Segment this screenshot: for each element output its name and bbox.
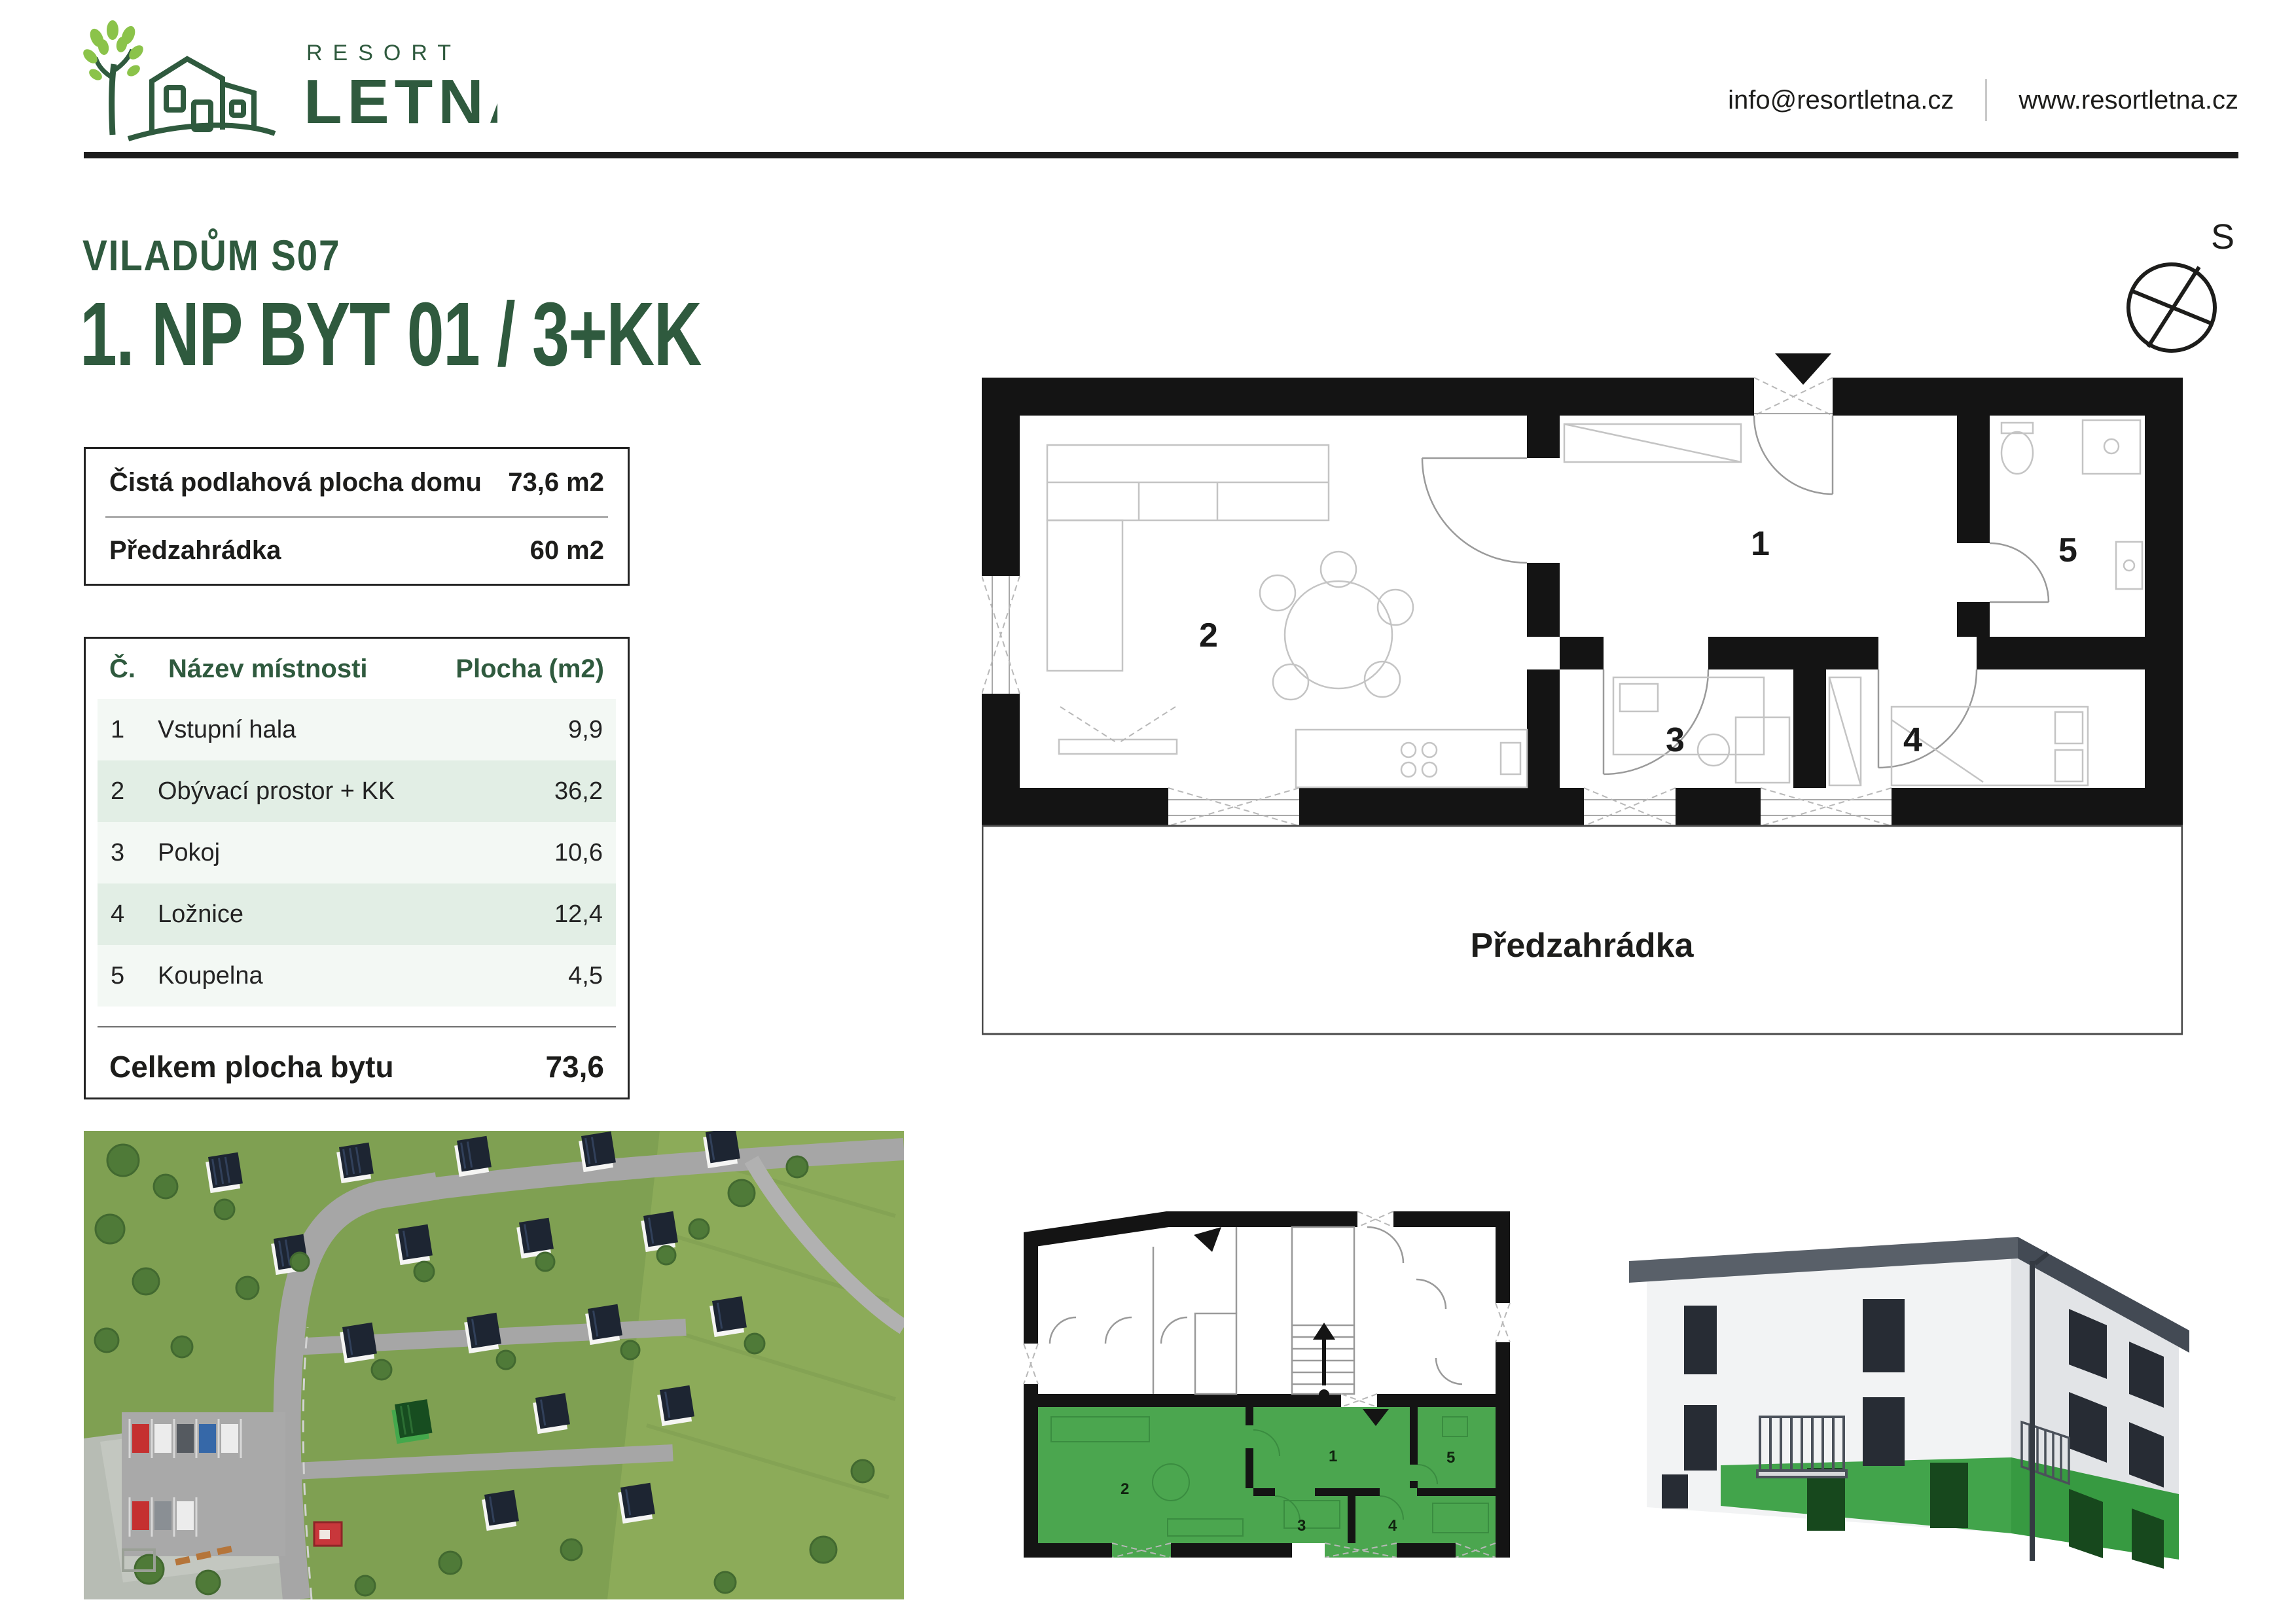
table-row: 3 Pokoj 10,6 [98,822,616,883]
page-title: 1. NP BYT 01 / 3+KK [80,283,701,387]
col-number: Č. [109,654,168,684]
total-label: Celkem plocha bytu [109,1049,394,1084]
mini-room-label-4: 4 [1388,1517,1397,1535]
room-name: Ložnice [158,901,554,929]
room-name: Obývací prostor + KK [158,777,554,806]
summary-row: Předzahrádka 60 m2 [109,517,604,584]
room-area: 12,4 [554,901,616,929]
email-link[interactable]: info@resortletna.cz [1728,86,1954,115]
room-table: Č. Název místnosti Plocha (m2) 1 Vstupní… [84,637,630,1099]
balcony [1757,1417,1846,1477]
summary-value: 60 m2 [530,536,604,565]
garden-label: Předzahrádka [1470,927,1694,965]
brand-top-label: RESORT [306,41,461,65]
website-link[interactable]: www.resortletna.cz [2018,86,2238,115]
building-render [1611,1201,2197,1582]
mini-entrance-window [1341,1394,1377,1407]
summary-value: 73,6 m2 [508,468,604,497]
table-row: 5 Koupelna 4,5 [98,945,616,1007]
downpipe [2030,1261,2035,1561]
entrance-arrow-icon [1775,353,1831,385]
compass-icon: S [2114,208,2251,372]
room-number: 5 [98,962,158,990]
room-area: 36,2 [554,777,616,806]
header-rule [84,152,2238,158]
highlighted-building [391,1399,433,1444]
mini-room-label-2: 2 [1121,1480,1129,1498]
table-row: 4 Ložnice 12,4 [98,883,616,945]
summary-label: Čistá podlahová plocha domu [109,468,482,497]
summary-box: Čistá podlahová plocha domu 73,6 m2 Před… [84,447,630,586]
parking [122,1412,285,1556]
table-row: 1 Vstupní hala 9,9 [98,699,616,760]
room-number: 3 [98,839,158,867]
table-total-row: Celkem plocha bytu 73,6 [109,1035,604,1098]
room-area: 10,6 [554,839,616,867]
brand-logo: RESORT LETNÁ [79,18,497,143]
room-number: 2 [98,777,158,806]
mini-floor-plan: 1 2 3 4 5 [1011,1201,1523,1582]
summary-row: Čistá podlahová plocha domu 73,6 m2 [109,449,604,516]
aerial-render [84,1131,904,1599]
room-label-1: 1 [1751,525,1770,563]
mini-room-label-5: 5 [1446,1449,1455,1467]
col-name: Název místnosti [168,654,456,684]
mini-room-label-3: 3 [1297,1517,1306,1535]
room-area: 4,5 [568,962,616,990]
col-area: Plocha (m2) [456,654,604,684]
page: RESORT LETNÁ info@resortletna.cz www.res… [0,0,2296,1623]
table-header: Č. Název místnosti Plocha (m2) [109,639,604,699]
room-label-2: 2 [1199,616,1218,654]
room-label-5: 5 [2058,531,2077,569]
contact-separator [1985,79,1987,121]
room-name: Koupelna [158,962,568,990]
room-label-4: 4 [1903,721,1922,759]
mini-room-label-1: 1 [1329,1448,1337,1465]
compass-north-label: S [2211,217,2234,257]
table-row: 2 Obývací prostor + KK 36,2 [98,760,616,822]
room-name: Pokoj [158,839,554,867]
header-contact: info@resortletna.cz www.resortletna.cz [1728,77,2238,123]
logo-tree-icon [81,20,146,135]
room-number: 1 [98,716,158,744]
main-floor-plan: 1 2 3 4 5 Předzahrádka [982,353,2183,1041]
interior-walls [1527,416,2145,788]
room-label-3: 3 [1666,721,1685,759]
project-title: VILADŮM S07 [82,230,340,280]
total-value: 73,6 [545,1049,604,1084]
brand-bottom-label: LETNÁ [304,67,497,137]
logo-house-icon [128,59,275,139]
highlighted-unit-area [1038,1407,1496,1543]
summary-label: Předzahrádka [109,536,281,565]
room-area: 9,9 [568,716,616,744]
mini-upper-unit [1050,1211,1462,1394]
total-divider [98,1026,616,1027]
room-name: Vstupní hala [158,716,568,744]
room-number: 4 [98,901,158,929]
